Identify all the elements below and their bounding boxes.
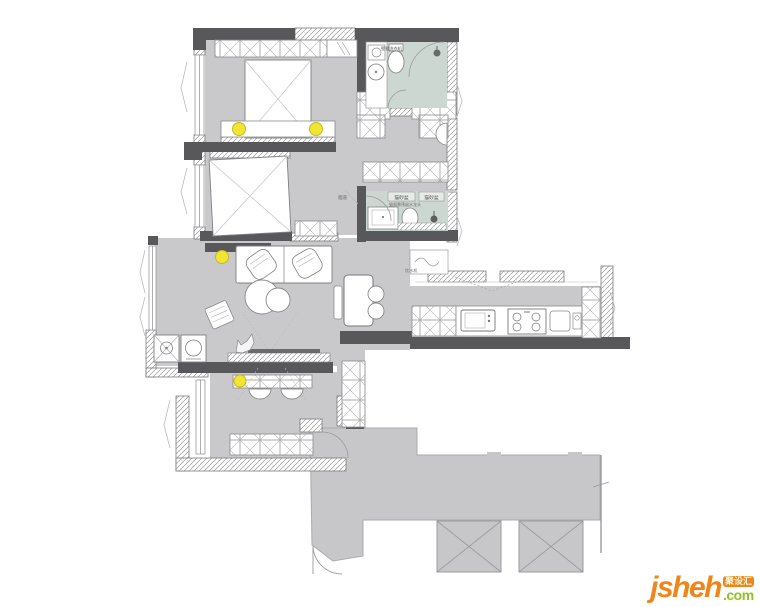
tall-cabinet — [582, 287, 601, 338]
oven-icon — [550, 311, 570, 331]
public-corridor — [310, 428, 609, 574]
watermark-badge: 聚设汇 — [723, 576, 754, 587]
dining-chair-icon — [368, 303, 384, 319]
wardrobe — [230, 434, 313, 455]
wardrobe — [215, 40, 327, 57]
ceiling-light-icon — [310, 123, 323, 136]
site-watermark: jsheh 聚设汇 .com — [650, 573, 754, 603]
bathroom-top: 壁挂洗衣机 — [366, 42, 447, 108]
watermark-tld: .com — [723, 588, 754, 602]
bathroom-cat: 猫砂盆 猫砂盆 猫厕需预留水龙头 — [366, 191, 448, 231]
floor-plan-drawing: 壁挂洗衣机 猫砂盆 猫砂盆 猫厕需预留水龙头 烟道 — [0, 0, 760, 607]
dining-bench-icon — [334, 286, 342, 319]
ceiling-light-icon — [233, 123, 246, 136]
litter-box-label: 猫砂盆 — [394, 194, 409, 201]
small-appliance-icon — [573, 313, 581, 329]
water-dispenser-label: 饮水机 — [405, 267, 418, 274]
watermark-brand: jsheh — [650, 573, 721, 603]
stove-icon — [508, 309, 546, 334]
litter-note-label: 猫厕需预留水龙头 — [389, 201, 421, 207]
kitchen-cabinet — [412, 306, 456, 336]
litter-box-label: 猫砂盆 — [424, 194, 439, 201]
shoe-cabinet — [342, 361, 365, 427]
tv-icon — [248, 349, 320, 353]
floor-plan-page: 壁挂洗衣机 猫砂盆 猫砂盆 猫厕需预留水龙头 烟道 — [0, 0, 760, 607]
washer-icon — [181, 335, 206, 362]
tv-console — [228, 353, 330, 362]
dining-chair-icon — [368, 286, 384, 302]
hatch-strip — [398, 223, 446, 230]
washing-machine-label: 壁挂洗衣机 — [381, 45, 403, 52]
dining-table-icon — [344, 275, 373, 326]
closet — [295, 221, 337, 236]
closet — [357, 115, 385, 138]
coffee-table-icon — [266, 288, 290, 312]
closet — [363, 162, 448, 182]
flue-label: 烟道 — [338, 194, 347, 201]
bedroom-second — [209, 156, 291, 236]
ceiling-light-icon — [216, 251, 229, 264]
toilet-icon — [388, 51, 404, 73]
ceiling-light-icon — [234, 375, 246, 387]
